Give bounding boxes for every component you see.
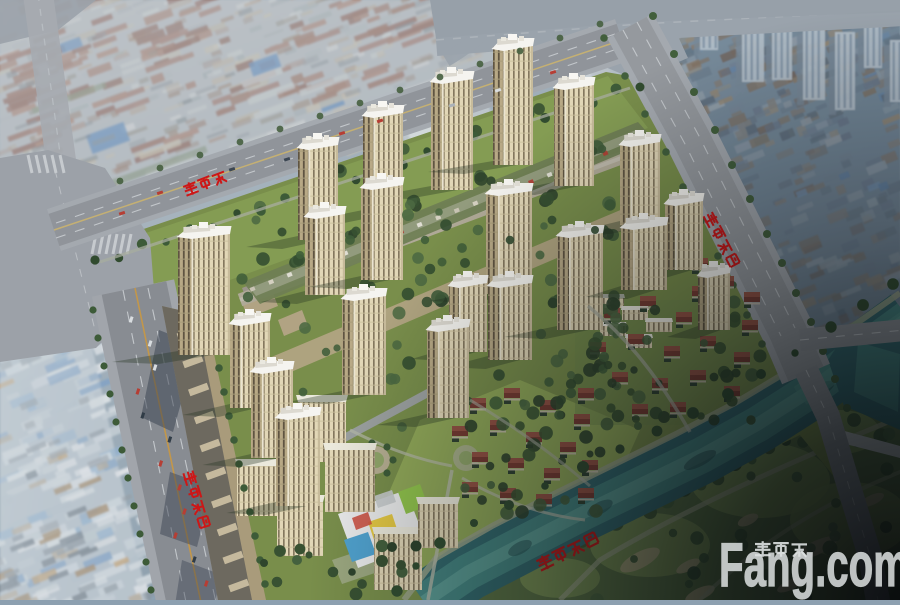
svg-text:Fang.com: Fang.com <box>719 531 900 600</box>
